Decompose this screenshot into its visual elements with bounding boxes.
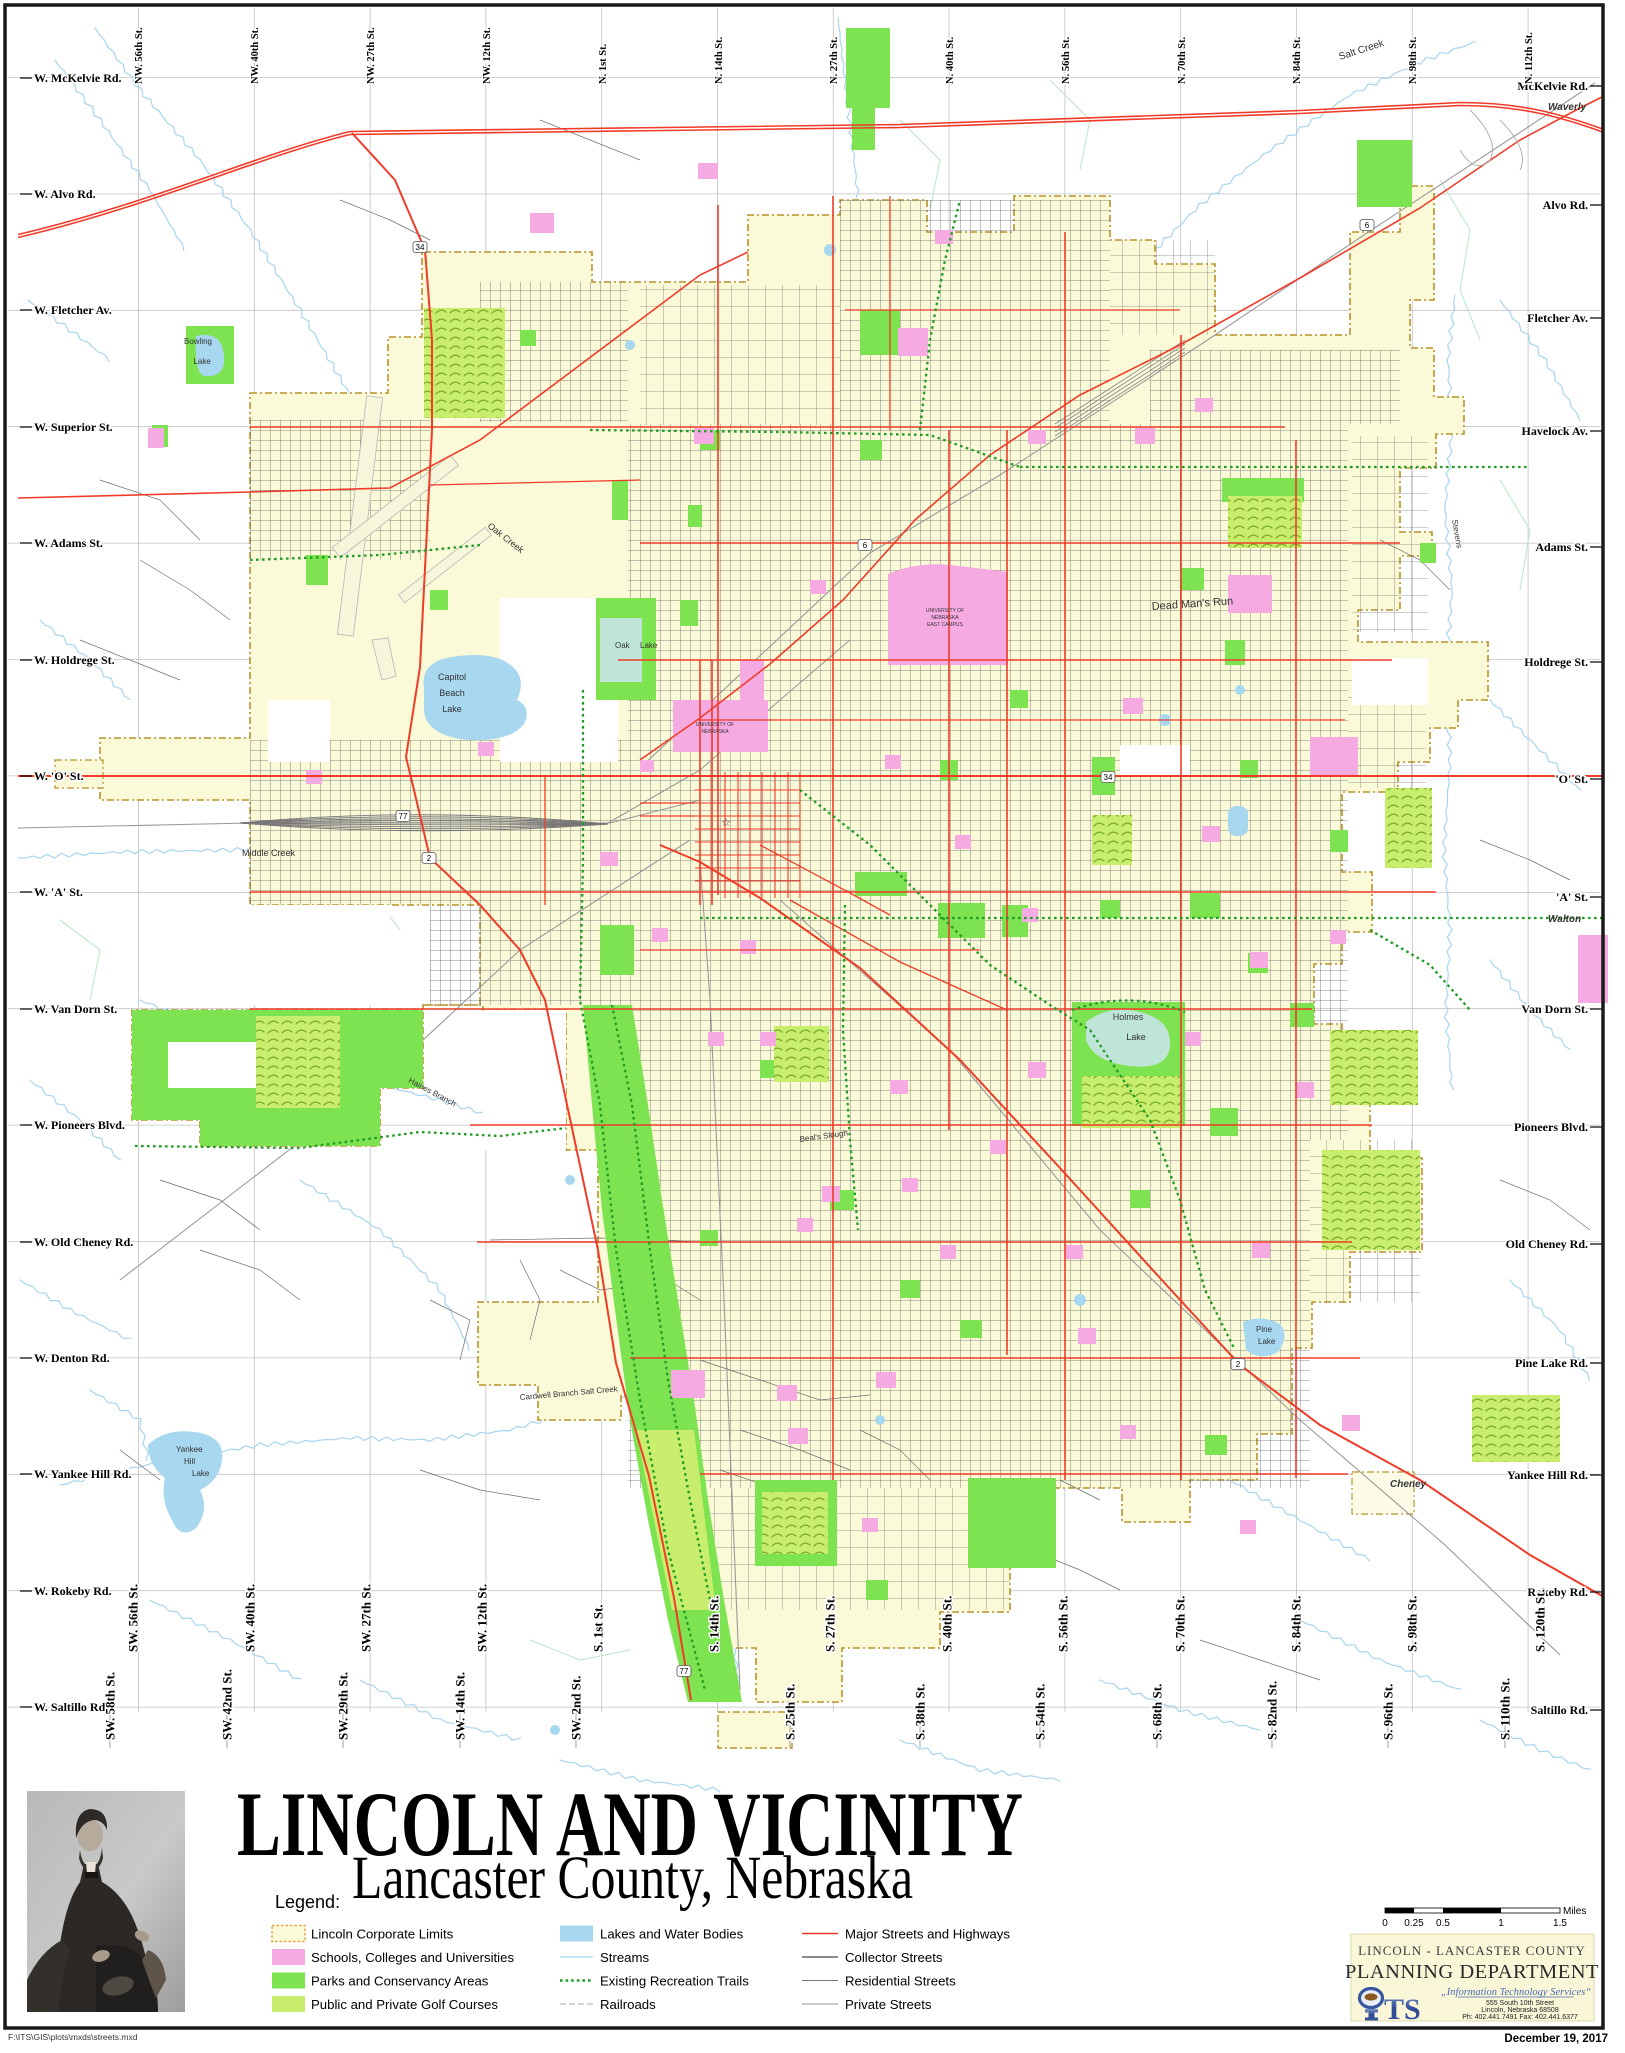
svg-text:S. 54th St.: S. 54th St. bbox=[1033, 1684, 1048, 1740]
svg-text:6: 6 bbox=[1365, 221, 1370, 230]
svg-text:W. Old Cheney Rd.: W. Old Cheney Rd. bbox=[34, 1235, 133, 1249]
svg-text:SW. 29th St.: SW. 29th St. bbox=[336, 1672, 351, 1740]
svg-text:Ph: 402.441.7491 Fax: 402.441: Ph: 402.441.7491 Fax: 402.441.6377 bbox=[1462, 2014, 1578, 2021]
svg-text:S. 56th St.: S. 56th St. bbox=[1056, 1596, 1071, 1652]
svg-text:Middle Creek: Middle Creek bbox=[242, 848, 296, 858]
svg-text:SW. 56th St.: SW. 56th St. bbox=[126, 1584, 141, 1652]
svg-text:Havelock Av.: Havelock Av. bbox=[1522, 424, 1588, 438]
svg-text:W. Yankee Hill Rd.: W. Yankee Hill Rd. bbox=[34, 1467, 131, 1481]
svg-text:0.5: 0.5 bbox=[1436, 1918, 1450, 1929]
svg-text:N. 40th St.: N. 40th St. bbox=[945, 36, 956, 84]
svg-text:☆: ☆ bbox=[721, 817, 731, 829]
svg-text:S. 84th St.: S. 84th St. bbox=[1289, 1596, 1304, 1652]
svg-text:W. Rokeby Rd.: W. Rokeby Rd. bbox=[34, 1584, 112, 1598]
svg-text:Yankee Hill Rd.: Yankee Hill Rd. bbox=[1507, 1468, 1588, 1482]
svg-text:December 19, 2017: December 19, 2017 bbox=[1504, 2033, 1608, 2045]
svg-text:EAST CAMPUS: EAST CAMPUS bbox=[927, 622, 963, 628]
svg-text:W. Superior St.: W. Superior St. bbox=[34, 420, 113, 434]
svg-text:NW. 27th St.: NW. 27th St. bbox=[366, 27, 377, 84]
svg-text:SW. 42nd St.: SW. 42nd St. bbox=[220, 1669, 235, 1740]
svg-text:Bowling: Bowling bbox=[184, 337, 212, 346]
svg-text:LINCOLN - LANCASTER COUNTY: LINCOLN - LANCASTER COUNTY bbox=[1358, 1943, 1586, 1958]
svg-text:Lake: Lake bbox=[1126, 1032, 1146, 1042]
svg-text:S. 120th St.: S. 120th St. bbox=[1533, 1589, 1548, 1652]
svg-text:SW. 58th St.: SW. 58th St. bbox=[103, 1672, 118, 1740]
svg-text:2: 2 bbox=[427, 854, 432, 863]
svg-text:Lake: Lake bbox=[1258, 1337, 1276, 1346]
svg-text:S. 96th St.: S. 96th St. bbox=[1381, 1684, 1396, 1740]
svg-text:Alvo Rd.: Alvo Rd. bbox=[1543, 198, 1588, 212]
svg-text:S. 40th St.: S. 40th St. bbox=[940, 1596, 955, 1652]
svg-text:Lincoln, Nebraska 68508: Lincoln, Nebraska 68508 bbox=[1481, 2007, 1559, 2014]
svg-text:Parks and Conservancy Areas: Parks and Conservancy Areas bbox=[311, 1974, 489, 1989]
svg-text:W. Alvo Rd.: W. Alvo Rd. bbox=[34, 187, 96, 201]
svg-text:34: 34 bbox=[416, 243, 425, 252]
svg-text:Old Cheney Rd.: Old Cheney Rd. bbox=[1506, 1237, 1588, 1251]
svg-text:TS: TS bbox=[1384, 1993, 1421, 2026]
svg-text:N. 56th St.: N. 56th St. bbox=[1061, 36, 1072, 84]
svg-text:Schools, Colleges and Universi: Schools, Colleges and Universities bbox=[311, 1950, 514, 1965]
svg-text:Lake: Lake bbox=[193, 357, 211, 366]
svg-text:N. 1st St.: N. 1st St. bbox=[598, 43, 609, 84]
svg-text:1: 1 bbox=[1498, 1918, 1504, 1929]
svg-text:N. 27th St.: N. 27th St. bbox=[829, 36, 840, 84]
svg-text:S. 98th St.: S. 98th St. bbox=[1405, 1596, 1420, 1652]
svg-text:Yankee: Yankee bbox=[176, 1445, 203, 1454]
svg-text:NW. 40th St.: NW. 40th St. bbox=[250, 27, 261, 84]
svg-text:555 South 10th Street: 555 South 10th Street bbox=[1486, 2000, 1554, 2007]
svg-text:Railroads: Railroads bbox=[600, 1997, 656, 2012]
svg-text:NEBRASKA: NEBRASKA bbox=[701, 729, 729, 735]
svg-text:N. 84th St.: N. 84th St. bbox=[1292, 36, 1303, 84]
svg-text:2: 2 bbox=[1236, 1360, 1241, 1369]
svg-text:W. Adams St.: W. Adams St. bbox=[34, 536, 103, 550]
svg-text:UNIVERSITY OF: UNIVERSITY OF bbox=[696, 722, 734, 728]
svg-text:Public and Private Golf Course: Public and Private Golf Courses bbox=[311, 1997, 498, 2012]
svg-text:W. 'A' St.: W. 'A' St. bbox=[34, 885, 83, 899]
svg-text:'A' St.: 'A' St. bbox=[1556, 890, 1588, 904]
svg-text:S. 14th St.: S. 14th St. bbox=[707, 1596, 722, 1652]
svg-text:S. 25th St.: S. 25th St. bbox=[783, 1684, 798, 1740]
svg-text:Waverly: Waverly bbox=[1548, 102, 1587, 113]
svg-text:Lake: Lake bbox=[640, 641, 658, 650]
svg-text:W. Fletcher Av.: W. Fletcher Av. bbox=[34, 303, 112, 317]
svg-text:F:\ITS\GIS\plots\mxds\streets.: F:\ITS\GIS\plots\mxds\streets.mxd bbox=[8, 2032, 138, 2042]
svg-text:Fletcher Av.: Fletcher Av. bbox=[1527, 311, 1588, 325]
svg-text:W. Holdrege St.: W. Holdrege St. bbox=[34, 653, 115, 667]
svg-text:PLANNING DEPARTMENT: PLANNING DEPARTMENT bbox=[1345, 1961, 1599, 1983]
svg-text:Lake: Lake bbox=[192, 1469, 210, 1478]
svg-text:W. Pioneers Blvd.: W. Pioneers Blvd. bbox=[34, 1118, 125, 1132]
svg-text:Walton: Walton bbox=[1548, 914, 1581, 925]
svg-text:Beach: Beach bbox=[439, 688, 465, 698]
svg-text:SW. 14th St.: SW. 14th St. bbox=[453, 1672, 468, 1740]
svg-text:Pioneers Blvd.: Pioneers Blvd. bbox=[1514, 1120, 1588, 1134]
svg-text:Pine: Pine bbox=[1256, 1325, 1273, 1334]
svg-text:6: 6 bbox=[863, 541, 868, 550]
svg-text:Major Streets and Highways: Major Streets and Highways bbox=[845, 1927, 1010, 1942]
svg-text:S. 38th St.: S. 38th St. bbox=[913, 1684, 928, 1740]
svg-text:S. 68th St.: S. 68th St. bbox=[1150, 1684, 1165, 1740]
svg-text:Lincoln Corporate Limits: Lincoln Corporate Limits bbox=[311, 1927, 454, 1942]
svg-text:Legend:: Legend: bbox=[275, 1892, 340, 1912]
svg-text:N. 14th St.: N. 14th St. bbox=[714, 36, 725, 84]
svg-text:N. 98th St.: N. 98th St. bbox=[1408, 36, 1419, 84]
svg-text:N. 70th St.: N. 70th St. bbox=[1177, 36, 1188, 84]
svg-text:S. 82nd St.: S. 82nd St. bbox=[1265, 1681, 1280, 1740]
svg-text:1.5: 1.5 bbox=[1553, 1918, 1567, 1929]
svg-text:Hill: Hill bbox=[184, 1457, 195, 1466]
svg-text:Lancaster County, Nebraska: Lancaster County, Nebraska bbox=[352, 1845, 913, 1912]
svg-text:Miles: Miles bbox=[1563, 1906, 1586, 1917]
svg-text:SW. 2nd St.: SW. 2nd St. bbox=[569, 1675, 584, 1740]
svg-text:Adams St.: Adams St. bbox=[1535, 540, 1588, 554]
svg-text:S. 27th St.: S. 27th St. bbox=[823, 1596, 838, 1652]
svg-text:NW. 12th St.: NW. 12th St. bbox=[482, 27, 493, 84]
svg-text:UNIVERSITY OF: UNIVERSITY OF bbox=[926, 608, 964, 614]
svg-text:Existing Recreation Trails: Existing Recreation Trails bbox=[600, 1974, 749, 1989]
svg-text:0: 0 bbox=[1382, 1918, 1388, 1929]
svg-text:Private Streets: Private Streets bbox=[845, 1997, 932, 2012]
svg-text:Streams: Streams bbox=[600, 1950, 650, 1965]
svg-text:Residential Streets: Residential Streets bbox=[845, 1974, 956, 1989]
svg-text:NW. 56th St.: NW. 56th St. bbox=[134, 27, 145, 84]
svg-text:Van Dorn St.: Van Dorn St. bbox=[1521, 1002, 1588, 1016]
svg-text:Holdrege St.: Holdrege St. bbox=[1524, 655, 1588, 669]
svg-text:Capitol: Capitol bbox=[438, 672, 466, 682]
svg-text:NEBRASKA: NEBRASKA bbox=[931, 615, 959, 621]
svg-text:Oak: Oak bbox=[615, 641, 631, 650]
svg-text:'O' St.: 'O' St. bbox=[1555, 772, 1588, 786]
svg-text:Holmes: Holmes bbox=[1113, 1012, 1144, 1022]
svg-text:„Information Technology Servic: „Information Technology Services“ bbox=[1441, 1987, 1591, 1998]
svg-text:77: 77 bbox=[399, 812, 408, 821]
svg-text:W. Van Dorn St.: W. Van Dorn St. bbox=[34, 1002, 117, 1016]
svg-text:W. McKelvie Rd.: W. McKelvie Rd. bbox=[34, 71, 122, 85]
svg-text:S. 70th St.: S. 70th St. bbox=[1173, 1596, 1188, 1652]
svg-text:Collector Streets: Collector Streets bbox=[845, 1950, 943, 1965]
svg-text:Saltillo Rd.: Saltillo Rd. bbox=[1531, 1703, 1588, 1717]
svg-text:S. 1st St.: S. 1st St. bbox=[591, 1604, 606, 1652]
svg-text:SW. 12th St.: SW. 12th St. bbox=[475, 1584, 490, 1652]
svg-text:SW. 27th St.: SW. 27th St. bbox=[359, 1584, 374, 1652]
svg-text:Lake: Lake bbox=[442, 704, 462, 714]
svg-text:S. 110th St.: S. 110th St. bbox=[1498, 1678, 1513, 1740]
svg-text:SW. 40th St.: SW. 40th St. bbox=[243, 1584, 258, 1652]
svg-text:Lakes and Water Bodies: Lakes and Water Bodies bbox=[600, 1927, 744, 1942]
svg-text:W. Denton Rd.: W. Denton Rd. bbox=[34, 1351, 110, 1365]
svg-text:Pine Lake Rd.: Pine Lake Rd. bbox=[1515, 1356, 1588, 1370]
svg-text:W. Saltillo Rd.: W. Saltillo Rd. bbox=[34, 1700, 108, 1714]
svg-text:Cheney: Cheney bbox=[1390, 1479, 1427, 1490]
svg-text:77: 77 bbox=[680, 1667, 689, 1676]
svg-text:W. 'O' St.: W. 'O' St. bbox=[34, 769, 84, 783]
svg-text:N. 112th St.: N. 112th St. bbox=[1524, 32, 1535, 84]
svg-text:0.25: 0.25 bbox=[1404, 1918, 1424, 1929]
svg-text:34: 34 bbox=[1104, 773, 1113, 782]
